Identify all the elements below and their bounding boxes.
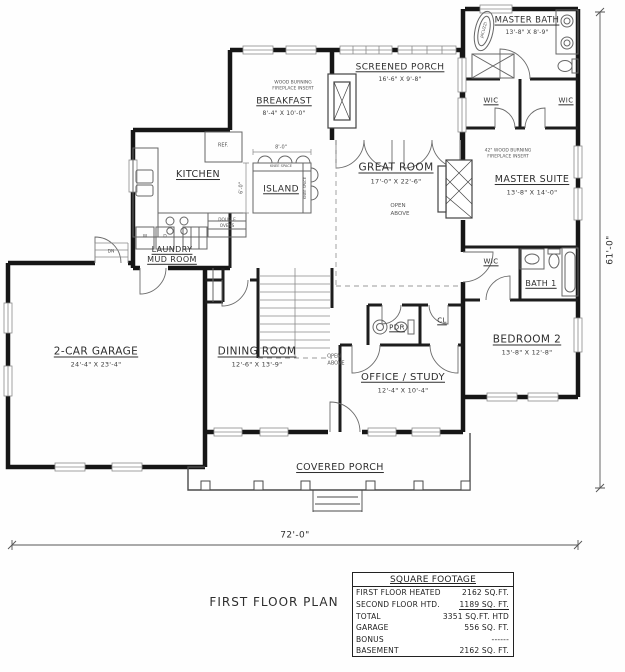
dryer-label: D xyxy=(163,236,166,241)
row-label: TOTAL xyxy=(356,612,381,621)
island-dim-top: 8'-0" xyxy=(275,145,287,150)
table-row: BASEMENT 2162 SQ. FT. xyxy=(353,645,513,656)
master-bath-name: MASTER BATH xyxy=(495,17,560,26)
closet-label: CL xyxy=(437,317,447,324)
garage-name: 2-CAR GARAGE xyxy=(54,346,138,357)
washer-label: W xyxy=(143,236,147,241)
door-swings xyxy=(95,49,545,432)
stairs-dn-label: DN xyxy=(108,251,115,256)
row-label: SECOND FLOOR HTD. xyxy=(356,600,440,610)
breakfast-fireplace-note-2: FIREPLACE INSERT xyxy=(272,88,314,93)
table-row: FIRST FLOOR HEATED 2162 SQ.FT. xyxy=(353,587,513,598)
wic-hall-label: WIC xyxy=(483,258,498,265)
office-study-dim: 12'-4" X 10'-4" xyxy=(378,388,429,395)
overall-height-dim: 61'-0" xyxy=(606,235,615,264)
suite-fireplace-note-1: 42" WOOD BURNING xyxy=(485,150,532,155)
double-ovens-label-1: DOUBLE xyxy=(218,218,235,222)
row-value: 2162 SQ.FT. xyxy=(462,588,509,597)
breakfast-dim: 8'-4" X 10'-0" xyxy=(263,111,306,117)
stairs-open-above-1: OPEN xyxy=(327,354,341,359)
suite-fireplace-note-2: FIREPLACE INSERT xyxy=(487,156,529,161)
laundry-fixtures xyxy=(136,227,213,302)
stairs-open-above-2: ABOVE xyxy=(327,361,344,366)
row-value: 1189 SQ. FT. xyxy=(459,600,509,610)
dining-room-name: DINING ROOM xyxy=(218,346,297,357)
ref-label: REF. xyxy=(218,143,228,148)
screened-porch-name: SCREENED PORCH xyxy=(356,63,445,72)
master-suite-dim: 13'-8" X 14'-0" xyxy=(507,190,558,197)
double-ovens-label-2: OVENS xyxy=(220,224,235,228)
row-label: GARAGE xyxy=(356,623,389,632)
fireplaces xyxy=(328,74,472,218)
breakfast-fireplace-note-1: WOOD BURNING xyxy=(274,82,311,87)
square-footage-table: SQUARE FOOTAGE FIRST FLOOR HEATED 2162 S… xyxy=(352,572,514,657)
screened-porch-dim: 16'-6" X 9'-8" xyxy=(379,77,422,83)
island-knee-space-top: KNEE SPACE xyxy=(270,165,292,169)
open-above-dashed xyxy=(258,145,461,358)
pdr-label: PDR xyxy=(389,324,405,331)
table-row: TOTAL 3351 SQ.FT. HTD xyxy=(353,611,513,622)
floor-plan: MASTER BATH 13'-8" X 8'-9" JACUZZI WIC W… xyxy=(0,0,625,672)
great-room-name: GREAT ROOM xyxy=(358,162,433,173)
row-value: 556 SQ. FT. xyxy=(464,623,509,632)
great-room-open-above-2: ABOVE xyxy=(391,212,410,218)
row-value: 3351 SQ.FT. HTD xyxy=(443,612,509,621)
covered-porch-name: COVERED PORCH xyxy=(296,463,384,473)
bedroom2-name: BEDROOM 2 xyxy=(493,334,561,345)
dining-room-dim: 12'-6" X 13'-9" xyxy=(232,362,283,369)
master-suite-name: MASTER SUITE xyxy=(495,175,570,185)
laundry-label-1: LAUNDRY xyxy=(152,246,193,254)
master-bath-dim: 13'-8" X 8'-9" xyxy=(506,30,549,36)
row-label: FIRST FLOOR HEATED xyxy=(356,588,441,597)
wic-left-label: WIC xyxy=(483,97,498,104)
wic-right-label: WIC xyxy=(558,97,573,104)
bath1-label: BATH 1 xyxy=(525,280,556,288)
square-footage-header: SQUARE FOOTAGE xyxy=(353,573,513,587)
laundry-label-2: MUD ROOM xyxy=(147,256,197,264)
great-room-open-above-1: OPEN xyxy=(390,204,405,210)
table-row: BONUS ------ xyxy=(353,634,513,645)
bedroom2-dim: 13'-8" X 12'-8" xyxy=(502,350,553,357)
garage-dim: 24'-4" X 23'-4" xyxy=(71,362,122,369)
row-value: 2162 SQ. FT. xyxy=(459,646,509,655)
overall-width-dim: 72'-0" xyxy=(280,531,309,540)
island-name: ISLAND xyxy=(263,185,299,194)
office-study-name: OFFICE / STUDY xyxy=(361,373,445,384)
kitchen-name: KITCHEN xyxy=(176,170,220,180)
island-knee-space-side: KNEE SPACE xyxy=(304,177,308,199)
row-label: BONUS xyxy=(356,635,384,644)
table-row: SECOND FLOOR HTD. 1189 SQ. FT. xyxy=(353,598,513,610)
table-row: GARAGE 556 SQ. FT. xyxy=(353,622,513,633)
great-room-dim: 17'-0" X 22'-6" xyxy=(371,179,422,186)
row-label: BASEMENT xyxy=(356,646,399,655)
row-value: ------ xyxy=(492,635,509,644)
bath-fixtures xyxy=(373,248,578,334)
plan-title: FIRST FLOOR PLAN xyxy=(209,595,338,609)
windows xyxy=(4,5,582,471)
island-dim-side: 6'-0" xyxy=(239,182,244,194)
breakfast-name: BREAKFAST xyxy=(256,97,312,106)
